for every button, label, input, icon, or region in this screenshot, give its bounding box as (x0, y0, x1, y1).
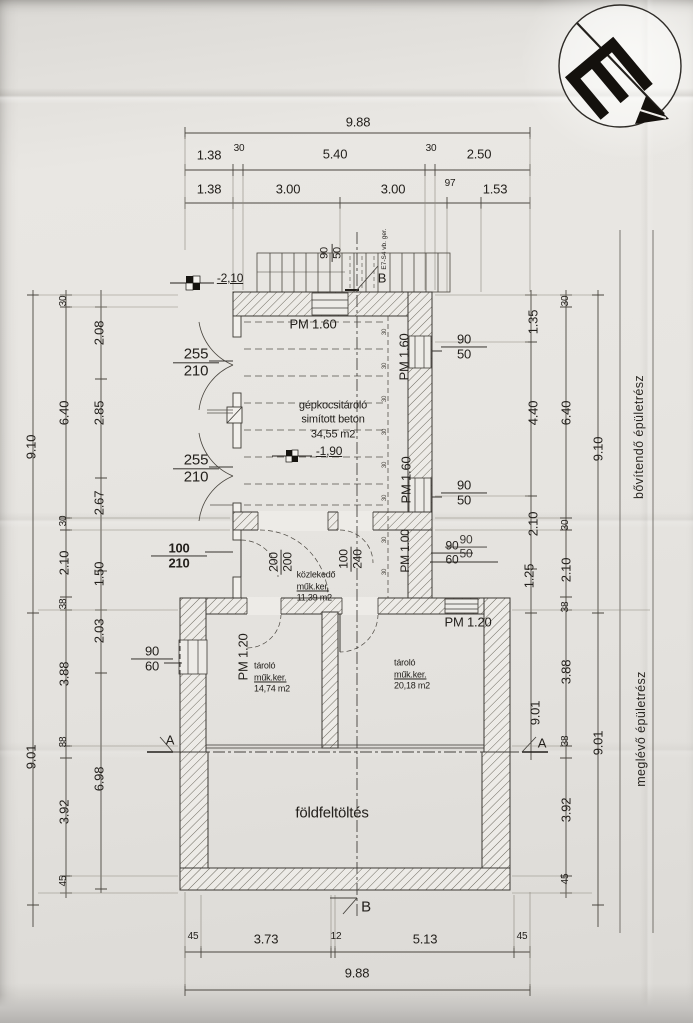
dim: 38 (561, 602, 571, 613)
dim: 30 (59, 516, 69, 527)
dim: 9.01 (529, 701, 542, 726)
dim: 5.13 (413, 933, 438, 946)
window-size-label: 9060 (131, 644, 173, 673)
dim: 1.38 (197, 183, 222, 196)
dim: 30 (561, 296, 571, 307)
beam-note: E7-S4 vb. ger. (382, 228, 389, 269)
logo-monogram-icon (559, 5, 681, 127)
dim-left-overall-upper: 9.10 (25, 435, 38, 460)
dim: 97 (445, 179, 456, 189)
parapet-label: PM 1.20 (237, 633, 250, 680)
room-label-storage1: tároló műk.ker. 14,74 m2 (254, 660, 290, 695)
dim: 2.10 (527, 512, 540, 537)
dim: 12 (331, 932, 342, 942)
dim: 6.40 (560, 401, 573, 426)
dim: 2.67 (93, 491, 106, 516)
window-size-label: 9050 (445, 534, 487, 561)
room-label-storage2: tároló műk.ker. 20,18 m2 (394, 657, 430, 692)
door-size-label: 255210 (173, 346, 219, 379)
dim: 6.40 (58, 401, 71, 426)
dim: 1.53 (483, 183, 508, 196)
dim: 3.92 (58, 800, 71, 825)
dim-left-overall-lower: 9.01 (25, 745, 38, 770)
room-label-garage: gépkocsitároló simított beton 34,55 m2 (299, 399, 367, 442)
dim: 1.38 (197, 149, 222, 162)
door-size-label: 100240 (338, 546, 365, 571)
dim: 1.50 (93, 562, 106, 587)
parapet-label: PM 1.60 (398, 333, 411, 380)
section-letter-b: B (361, 900, 371, 915)
dim-right-overall-upper: 9.10 (592, 437, 605, 462)
dim: 2.10 (560, 558, 573, 583)
section-letter-b: B (378, 272, 386, 285)
parapet-label: PM 1.00 (399, 529, 411, 572)
door-size-label: 255210 (173, 452, 219, 485)
slope-mark: 30 (382, 329, 388, 335)
dim: 6.98 (93, 767, 106, 792)
dim: 45 (561, 874, 571, 885)
dim: 38 (59, 599, 69, 610)
dim: 30 (59, 296, 69, 307)
slope-mark: 30 (382, 462, 388, 468)
dim: 30 (234, 144, 245, 154)
parapet-label: PM 1.20 (444, 616, 491, 629)
slope-mark: 30 (382, 396, 388, 402)
dim: 30 (561, 520, 571, 531)
part-label-new: bővítendő épületrész (633, 375, 646, 499)
part-label-existing: meglévő épületrész (635, 671, 648, 787)
level-label: -2,10 (217, 272, 243, 284)
dim: 1.35 (527, 310, 540, 335)
section-letter-a: A (538, 737, 546, 750)
slope-mark: 30 (382, 537, 388, 543)
dim: 3.92 (560, 798, 573, 823)
dim: 45 (59, 876, 69, 887)
dim-bottom-total: 9.88 (345, 967, 370, 980)
dim: 2.03 (93, 619, 106, 644)
slope-mark: 30 (382, 429, 388, 435)
dim: 3.00 (381, 183, 406, 196)
scanned-floor-plan: 9.88 1.38 30 5.40 30 2.50 1.38 3.00 3.00… (0, 0, 693, 1023)
room-label-corridor: közlekedő műk.ker. 11,39 m2 (297, 569, 336, 604)
dim: 38 (59, 737, 69, 748)
dim: 5.40 (323, 148, 348, 161)
dim: 2.08 (93, 321, 106, 346)
dim: 4.40 (527, 401, 540, 426)
dim: 3.88 (560, 660, 573, 685)
level-label: -1,90 (316, 445, 342, 457)
dim-right-overall-lower: 9.01 (592, 731, 605, 756)
dim: 2.85 (93, 401, 106, 426)
door-size-label: 200200 (268, 549, 295, 574)
dim: 45 (517, 932, 528, 942)
dim: 30 (426, 144, 437, 154)
room-label-fill: földfeltöltés (295, 806, 368, 821)
dim: 45 (188, 932, 199, 942)
dim: 38 (561, 736, 571, 747)
dim: 3.88 (58, 662, 71, 687)
stairs (257, 253, 450, 292)
slope-mark: 30 (382, 495, 388, 501)
dim: 3.73 (254, 933, 279, 946)
dim: 1.25 (523, 564, 536, 589)
window-size-label: 9050 (320, 244, 345, 262)
existing-top-wall (180, 597, 510, 615)
parapet-label: PM 1.60 (289, 318, 336, 331)
slope-mark: 30 (382, 569, 388, 575)
door-size-label: 100210 (151, 541, 207, 570)
window-size-label: 9050 (441, 332, 487, 361)
dim-top-total: 9.88 (346, 116, 371, 129)
slope-mark: 30 (382, 363, 388, 369)
dim: 3.00 (276, 183, 301, 196)
parapet-label: PM 1.60 (400, 456, 413, 503)
dim: 2.10 (58, 551, 71, 576)
window-size-label: 9050 (441, 478, 487, 507)
section-letter-a: A (166, 734, 174, 747)
dim: 2.50 (467, 148, 492, 161)
